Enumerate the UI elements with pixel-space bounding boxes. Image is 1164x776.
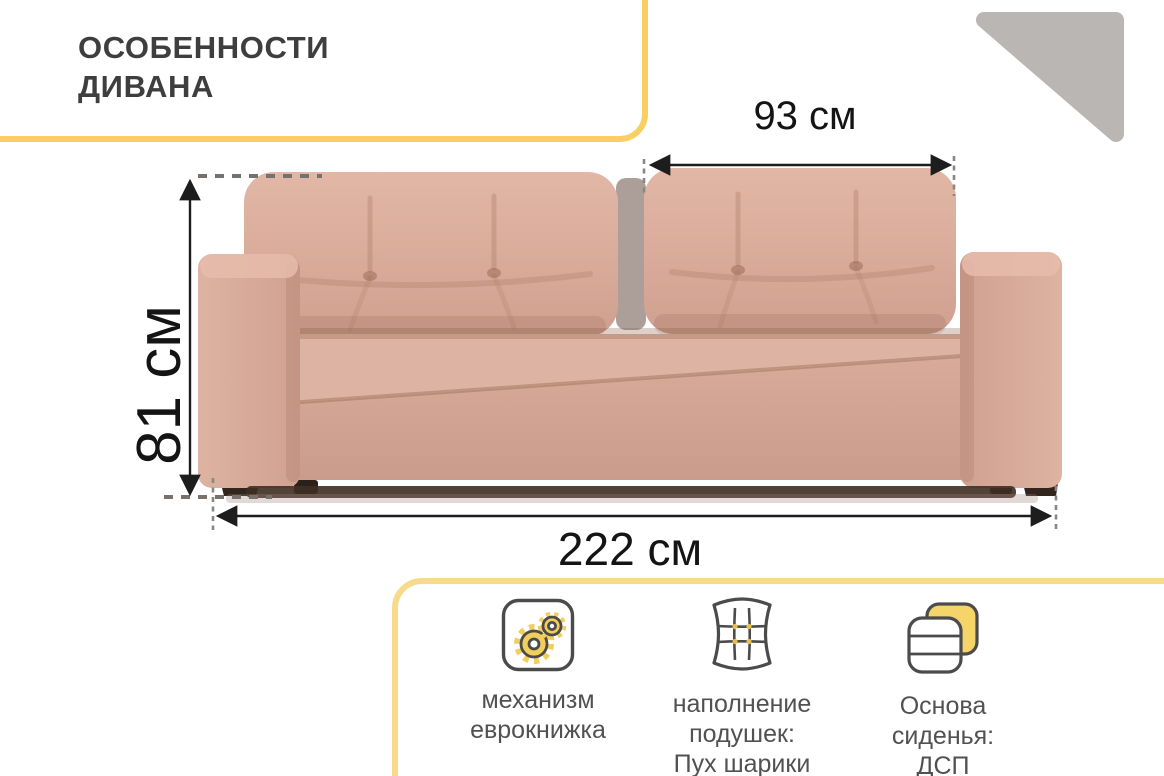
sofa-image [192, 166, 1068, 510]
height-label: 81 см [125, 275, 195, 495]
feature-pillow-filling: наполнение подушек: Пух шарики [632, 592, 852, 776]
feature-pillow-filling-label: наполнение подушек: Пух шарики [673, 689, 812, 776]
feature-seat-base: Основа сиденья: ДСП [833, 598, 1053, 776]
corner-triangle-decoration [972, 4, 1128, 144]
length-label: 222 см [520, 522, 740, 576]
pillow-icon [700, 592, 784, 676]
feature-mechanism: механизм еврокнижка [428, 598, 648, 745]
page-title: ОСОБЕННОСТИ ДИВАНА [78, 28, 558, 106]
feature-mechanism-label: механизм еврокнижка [470, 685, 606, 745]
cushion-width-label: 93 см [705, 94, 905, 139]
layers-icon [903, 598, 983, 678]
feature-seat-base-label: Основа сиденья: ДСП [892, 691, 994, 776]
gears-icon [501, 598, 575, 672]
product-infographic: ОСОБЕННОСТИ ДИВАНА 93 см 81 см 222 см [0, 0, 1164, 776]
